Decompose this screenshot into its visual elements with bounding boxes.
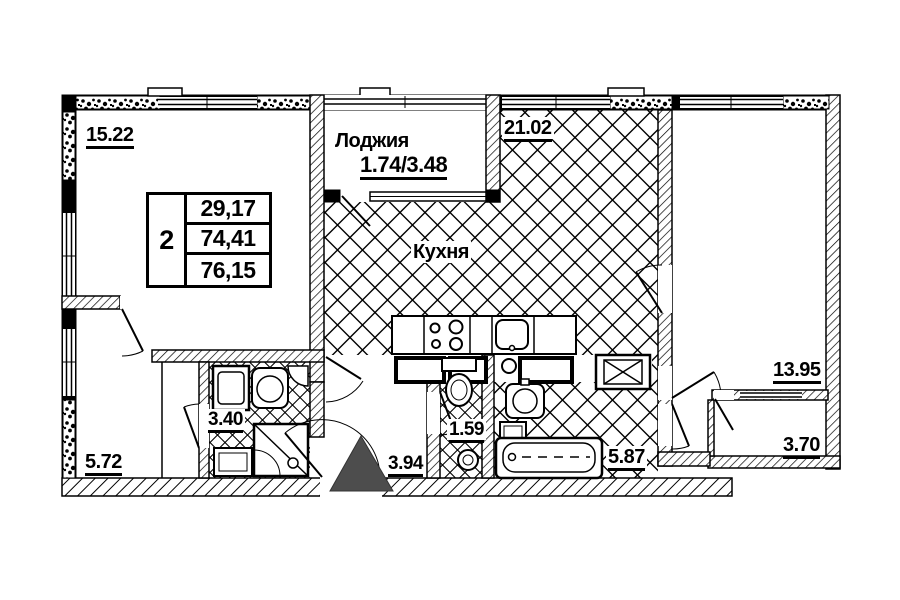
kitchen-sink: [496, 320, 528, 351]
room-label-loggia-name: Лоджия: [333, 130, 411, 152]
washing-machine: [213, 366, 249, 410]
kitchen-living-area: 21.02: [504, 117, 552, 142]
bathroom-area: 5.87: [608, 446, 645, 471]
living-room-area: 15.22: [86, 124, 134, 149]
rooms-count: 2: [149, 195, 187, 285]
hallway-area: 3.94: [388, 453, 423, 477]
entrance-arrow: [330, 436, 393, 491]
room-label-bathroom: 5.87: [606, 446, 647, 468]
room-label-bedroom-loggia: 3.70: [781, 434, 822, 456]
apartment-info-table: 2 29,17 74,41 76,15: [146, 192, 272, 288]
loggia-name: Лоджия: [335, 130, 409, 152]
bathtub: [496, 438, 602, 478]
wardrobe-area: 5.72: [85, 451, 122, 476]
kitchen-counter: [392, 316, 576, 354]
bathroom-sink: [506, 379, 544, 418]
room-label-bedroom: 13.95: [771, 359, 823, 381]
loggia-glazing: [324, 95, 486, 110]
room-label-shower-room: 3.40: [206, 409, 245, 430]
living-area-value: 29,17: [187, 195, 269, 225]
room-label-wc: 1.59: [447, 419, 486, 440]
room-label-wardrobe: 5.72: [83, 451, 124, 473]
floor-plan-page: 15.22 Лоджия 1.74/3.48 21.02 Кухня 13.95…: [0, 0, 900, 600]
low-cabinet: [214, 448, 252, 476]
kitchen-base-cabinets: [396, 358, 572, 382]
room-label-hallway: 3.94: [386, 453, 425, 474]
kitchen-name: Кухня: [413, 241, 469, 263]
room-label-kitchen: Кухня: [411, 241, 471, 263]
total-area-value: 76,15: [187, 255, 269, 285]
bedroom-area: 13.95: [773, 359, 821, 384]
wc-area: 1.59: [449, 419, 484, 443]
shower-sink: [252, 368, 288, 408]
toilet: [442, 358, 476, 406]
floor-plan-drawing: [0, 0, 900, 600]
room-label-living-room: 15.22: [84, 124, 136, 146]
room-label-kitchen-living: 21.02: [502, 117, 554, 139]
room-label-loggia-area: 1.74/3.48: [358, 153, 449, 177]
vent-shaft: [596, 355, 650, 389]
loggia-area: 1.74/3.48: [360, 152, 447, 180]
wc-small-sink: [458, 450, 478, 470]
bedroom-loggia-area: 3.70: [783, 434, 820, 459]
shower-room-area: 3.40: [208, 409, 243, 433]
apartment-area-value: 74,41: [187, 225, 269, 255]
